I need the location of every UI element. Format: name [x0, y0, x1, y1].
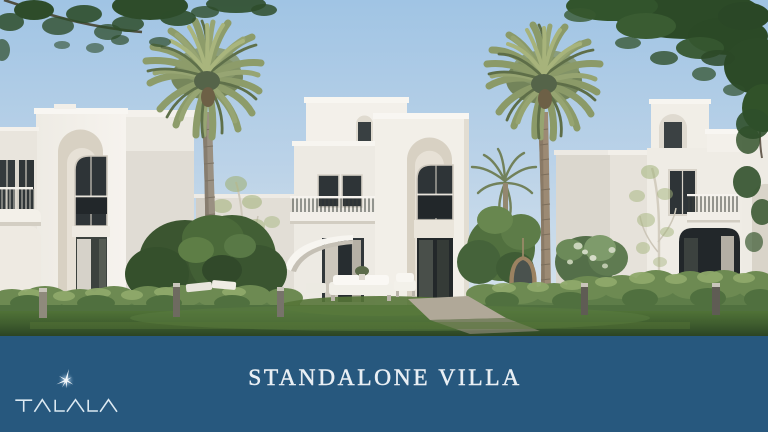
svg-text:STANDALONE VILLA: STANDALONE VILLA	[248, 365, 522, 391]
